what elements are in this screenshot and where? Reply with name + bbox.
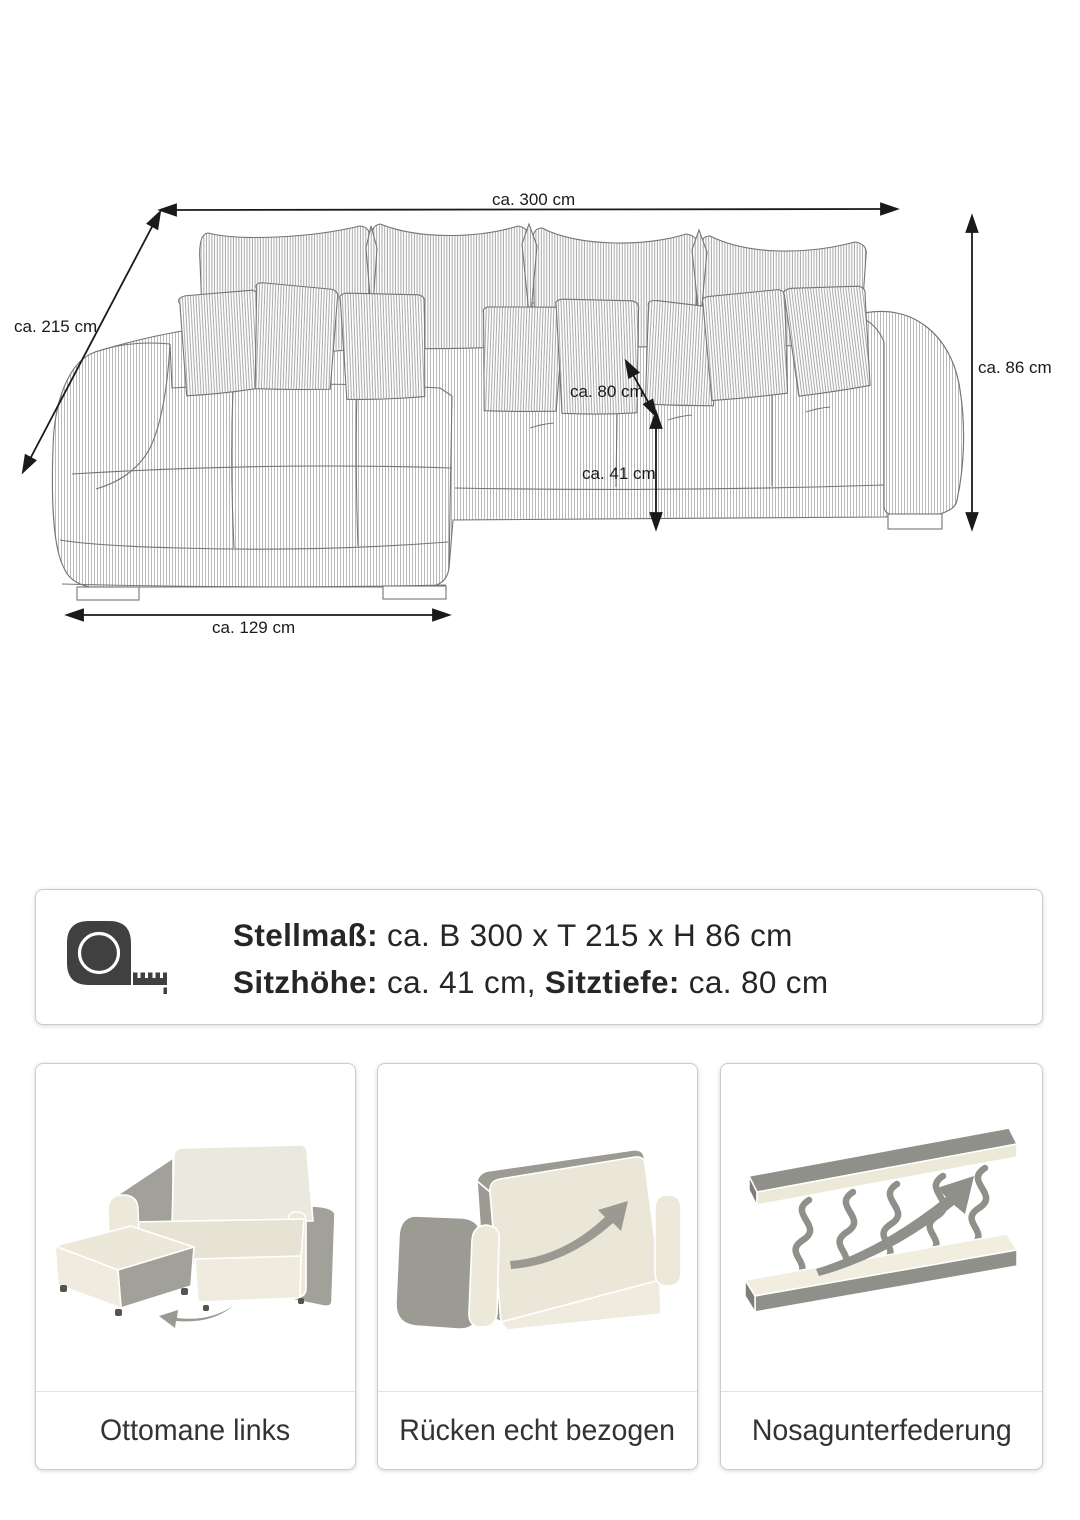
- svg-text:ca. 80 cm: ca. 80 cm: [570, 382, 644, 401]
- svg-text:ca. 129 cm: ca. 129 cm: [212, 618, 295, 637]
- svg-text:ca. 41 cm: ca. 41 cm: [582, 464, 656, 483]
- svg-text:ca. 86 cm: ca. 86 cm: [978, 358, 1052, 377]
- svg-text:ca. 300 cm: ca. 300 cm: [492, 190, 575, 209]
- svg-text:ca. 215 cm: ca. 215 cm: [14, 317, 97, 336]
